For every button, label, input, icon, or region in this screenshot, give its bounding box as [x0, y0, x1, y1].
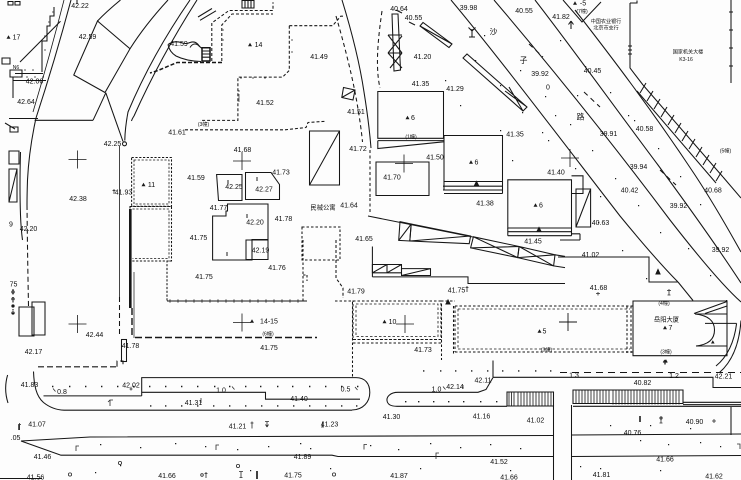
- svg-text:子: 子: [520, 56, 528, 65]
- svg-text:41.30: 41.30: [383, 414, 401, 421]
- svg-text:.05: .05: [11, 435, 21, 442]
- svg-text:42.20: 42.20: [246, 220, 264, 227]
- svg-text:(3幢): (3幢): [198, 121, 210, 128]
- svg-text:5: 5: [543, 329, 547, 336]
- svg-text:10: 10: [389, 319, 397, 326]
- svg-text:42.06: 42.06: [26, 79, 44, 86]
- svg-text:1.2: 1.2: [669, 373, 679, 380]
- svg-text:40.55: 40.55: [405, 15, 423, 22]
- svg-text:(5幢): (5幢): [720, 147, 732, 154]
- svg-text:(3幢): (3幢): [660, 348, 672, 355]
- svg-text:(7幢): (7幢): [576, 8, 588, 15]
- svg-text:41.35: 41.35: [506, 132, 524, 139]
- svg-text:41.73: 41.73: [272, 170, 290, 177]
- svg-text:(3幢): (3幢): [541, 346, 553, 353]
- svg-text:40.64: 40.64: [390, 6, 408, 13]
- svg-text:41.16: 41.16: [473, 414, 491, 421]
- svg-text:41.93: 41.93: [115, 190, 133, 197]
- svg-text:-5: -5: [580, 1, 586, 8]
- svg-text:40.45: 40.45: [584, 68, 602, 75]
- svg-text:41.59: 41.59: [187, 175, 205, 182]
- svg-text:41.29: 41.29: [446, 86, 464, 93]
- svg-text:75: 75: [10, 282, 18, 289]
- svg-text:41.02: 41.02: [582, 252, 600, 259]
- svg-text:41.68: 41.68: [234, 147, 252, 154]
- svg-text:41.21: 41.21: [229, 424, 247, 431]
- svg-text:41.66: 41.66: [500, 475, 518, 480]
- svg-text:42.27: 42.27: [255, 187, 273, 194]
- svg-text:41.75: 41.75: [190, 235, 208, 242]
- svg-text:39.91: 39.91: [600, 131, 618, 138]
- svg-text:40.55: 40.55: [515, 8, 533, 15]
- svg-text:41.89: 41.89: [294, 454, 312, 461]
- svg-text:41.83: 41.83: [21, 382, 39, 389]
- svg-text:41.64: 41.64: [340, 203, 358, 210]
- svg-text:41.20: 41.20: [414, 54, 432, 61]
- svg-text:路: 路: [577, 111, 585, 121]
- svg-text:41.50: 41.50: [426, 155, 444, 162]
- svg-text:41.52: 41.52: [490, 459, 508, 466]
- svg-text:41.56: 41.56: [27, 475, 45, 480]
- svg-text:(1幢): (1幢): [405, 133, 417, 140]
- svg-text:41.45: 41.45: [524, 239, 542, 246]
- svg-text:41.75: 41.75: [448, 288, 466, 295]
- svg-text:42.17: 42.17: [25, 349, 43, 356]
- svg-text:41.07: 41.07: [28, 422, 46, 429]
- svg-text:41.77: 41.77: [210, 205, 228, 212]
- svg-text:42.19: 42.19: [252, 248, 270, 255]
- svg-text:1.0: 1.0: [216, 388, 226, 395]
- svg-text:40.58: 40.58: [636, 126, 654, 133]
- svg-text:41.35: 41.35: [412, 81, 430, 88]
- svg-text:40.90: 40.90: [686, 419, 704, 426]
- svg-text:41.49: 41.49: [310, 54, 328, 61]
- svg-text:41.79: 41.79: [347, 289, 365, 296]
- svg-text:(6幢): (6幢): [262, 330, 274, 337]
- svg-text:41.51: 41.51: [347, 109, 365, 116]
- svg-text:42.25: 42.25: [104, 141, 122, 148]
- svg-text:14-15: 14-15: [260, 319, 278, 326]
- svg-text:0: 0: [546, 85, 550, 92]
- svg-text:41.75: 41.75: [284, 473, 302, 480]
- svg-text:国家机关大楼: 国家机关大楼: [673, 48, 704, 55]
- svg-text:II: II: [256, 177, 259, 183]
- svg-text:北京市支行: 北京市支行: [593, 24, 618, 31]
- svg-text:42.22: 42.22: [71, 3, 89, 10]
- svg-text:39.92: 39.92: [670, 203, 688, 210]
- svg-text:11: 11: [148, 182, 155, 189]
- svg-text:1.0: 1.0: [432, 387, 442, 394]
- svg-text:40.76: 40.76: [624, 430, 642, 437]
- svg-text:II: II: [227, 180, 230, 186]
- svg-text:39.92: 39.92: [531, 71, 549, 78]
- svg-text:41.87: 41.87: [390, 473, 408, 480]
- svg-text:41.76: 41.76: [268, 265, 286, 272]
- svg-text:41.62: 41.62: [705, 474, 723, 480]
- svg-text:41.02: 41.02: [527, 418, 545, 425]
- svg-text:II: II: [246, 214, 249, 220]
- svg-text:41.66: 41.66: [158, 473, 176, 480]
- svg-text:42.38: 42.38: [69, 196, 87, 203]
- svg-text:39.94: 39.94: [630, 164, 648, 171]
- svg-text:9: 9: [9, 222, 13, 229]
- svg-text:41.38: 41.38: [476, 201, 494, 208]
- svg-text:41.78: 41.78: [275, 216, 293, 223]
- svg-text:41.40: 41.40: [547, 170, 565, 177]
- svg-text:41.40: 41.40: [290, 396, 308, 403]
- svg-text:41.59: 41.59: [170, 41, 188, 48]
- svg-text:N6: N6: [13, 65, 20, 71]
- svg-text:民械公寓: 民械公寓: [310, 203, 335, 212]
- svg-text:40.63: 40.63: [592, 220, 610, 227]
- svg-text:41.78: 41.78: [122, 343, 140, 350]
- svg-text:42.11: 42.11: [475, 378, 492, 385]
- svg-text:41.82: 41.82: [552, 14, 570, 21]
- svg-text:1.3: 1.3: [569, 373, 579, 380]
- svg-text:II: II: [226, 252, 229, 258]
- svg-text:41.66: 41.66: [656, 457, 674, 464]
- svg-text:41.31: 41.31: [185, 400, 203, 407]
- svg-text:41.73: 41.73: [414, 347, 432, 354]
- svg-text:41.65: 41.65: [355, 236, 373, 243]
- svg-text:41.75: 41.75: [260, 345, 278, 352]
- svg-text:K3-16: K3-16: [679, 57, 693, 63]
- svg-text:41.61: 41.61: [168, 130, 186, 137]
- svg-text:39.92: 39.92: [712, 247, 730, 254]
- svg-text:7: 7: [669, 325, 673, 332]
- svg-text:40.42: 40.42: [621, 188, 639, 195]
- svg-text:42.21: 42.21: [715, 374, 733, 381]
- svg-text:17: 17: [13, 35, 21, 42]
- svg-text:41.75: 41.75: [195, 274, 213, 281]
- svg-text:6: 6: [475, 160, 479, 167]
- svg-text:0.5: 0.5: [341, 387, 351, 394]
- svg-text:(4幢): (4幢): [658, 300, 670, 307]
- svg-text:41.72: 41.72: [349, 146, 367, 153]
- svg-text:40.68: 40.68: [704, 188, 722, 195]
- svg-text:40.82: 40.82: [634, 380, 652, 387]
- svg-text:42.20: 42.20: [20, 226, 38, 233]
- svg-text:41.52: 41.52: [256, 100, 274, 107]
- svg-text:6: 6: [411, 115, 415, 122]
- svg-text:42.44: 42.44: [86, 332, 104, 339]
- svg-text:中国农业银行: 中国农业银行: [591, 18, 622, 25]
- svg-text:42.59: 42.59: [79, 34, 97, 41]
- svg-text:42.02: 42.02: [122, 383, 140, 390]
- svg-text:42.64: 42.64: [17, 99, 35, 106]
- svg-text:41.46: 41.46: [34, 454, 52, 461]
- svg-text:39.98: 39.98: [460, 5, 478, 12]
- svg-text:岳阳大厦: 岳阳大厦: [654, 315, 680, 324]
- svg-text:41.68: 41.68: [590, 285, 608, 292]
- svg-text:42.14: 42.14: [446, 384, 464, 391]
- svg-text:41.23: 41.23: [321, 422, 339, 429]
- svg-text:14: 14: [255, 42, 263, 49]
- svg-text:0.8: 0.8: [57, 389, 67, 396]
- svg-text:6: 6: [539, 203, 543, 210]
- svg-text:41.70: 41.70: [383, 175, 401, 182]
- svg-text:沙: 沙: [490, 27, 498, 36]
- svg-text:41.81: 41.81: [593, 472, 611, 479]
